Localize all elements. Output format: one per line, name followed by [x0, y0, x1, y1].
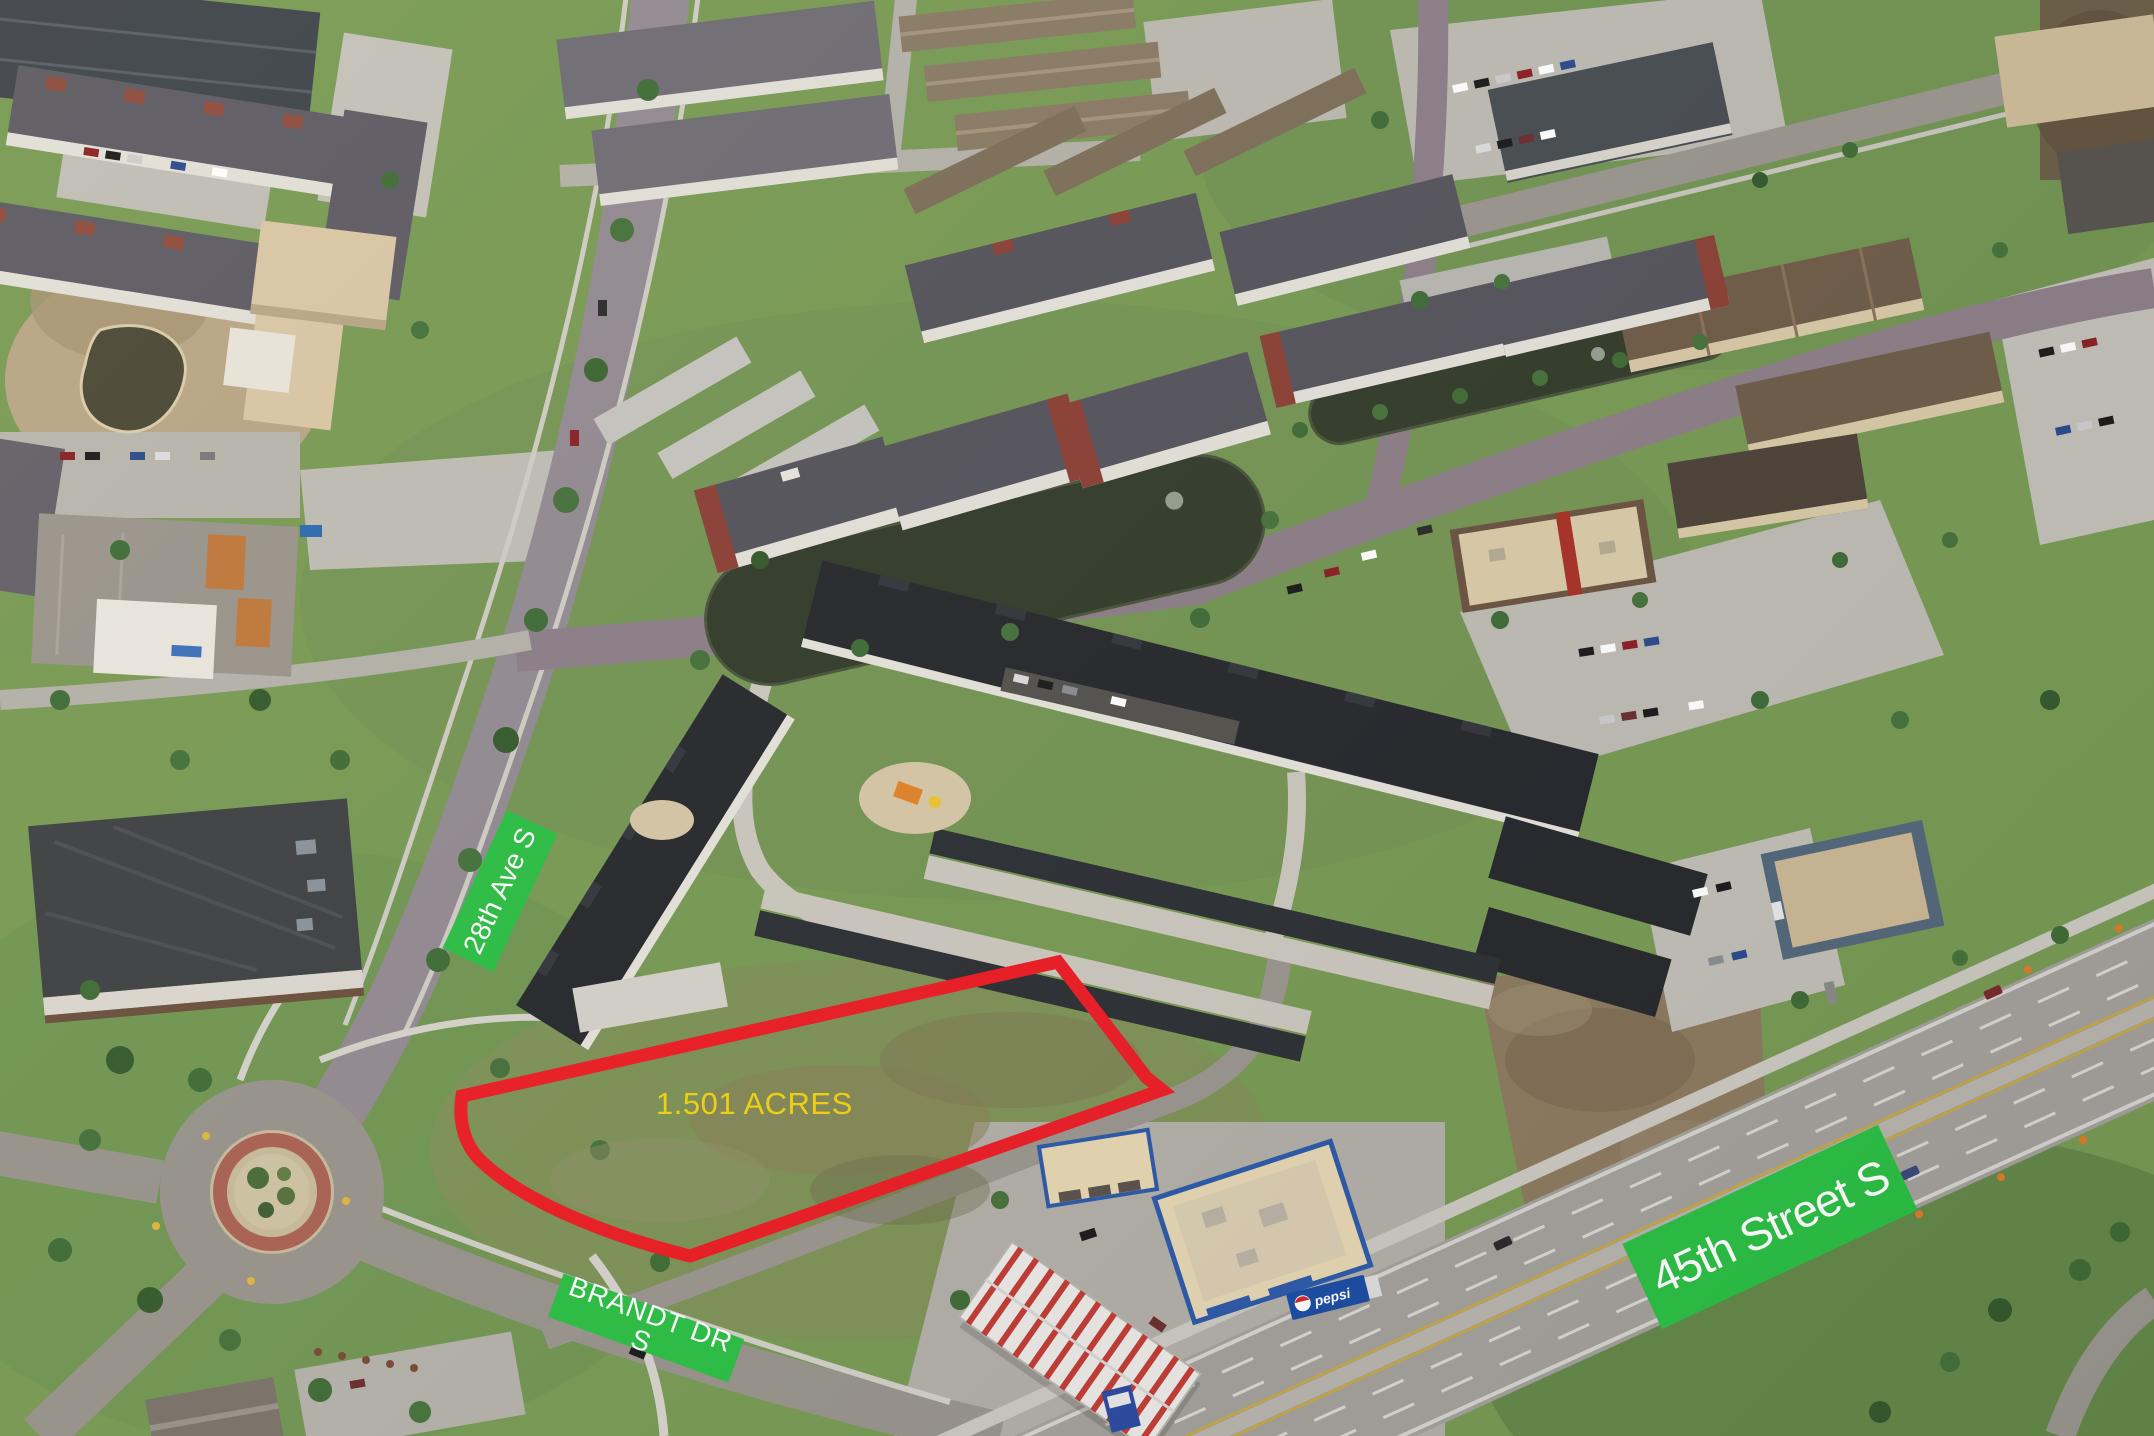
- clinic-complex: [31, 513, 322, 679]
- playground: [859, 762, 971, 834]
- acreage-label: 1.501 ACRES: [656, 1086, 853, 1122]
- aerial-listing-image: pepsi: [0, 0, 2154, 1436]
- event-center: [28, 798, 364, 1023]
